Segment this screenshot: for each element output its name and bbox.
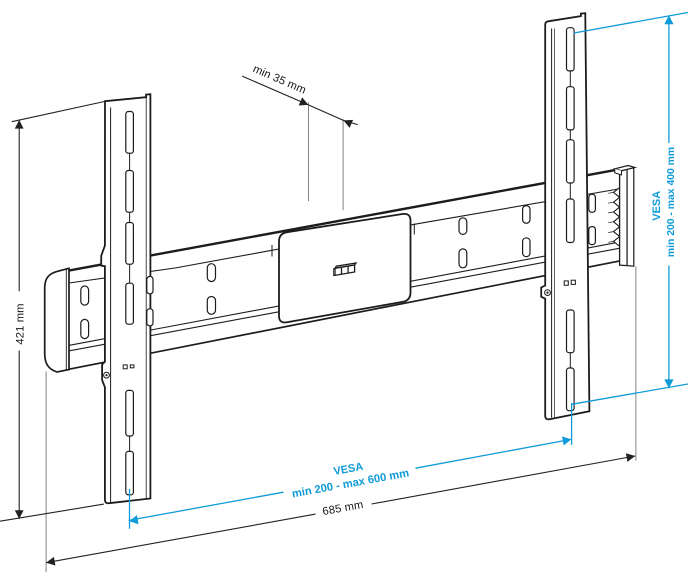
svg-text:min 200 - max 400 mm: min 200 - max 400 mm bbox=[666, 147, 677, 257]
svg-text:685 mm: 685 mm bbox=[322, 499, 365, 518]
svg-text:421 mm: 421 mm bbox=[15, 303, 27, 344]
svg-text:VESA: VESA bbox=[651, 191, 663, 221]
